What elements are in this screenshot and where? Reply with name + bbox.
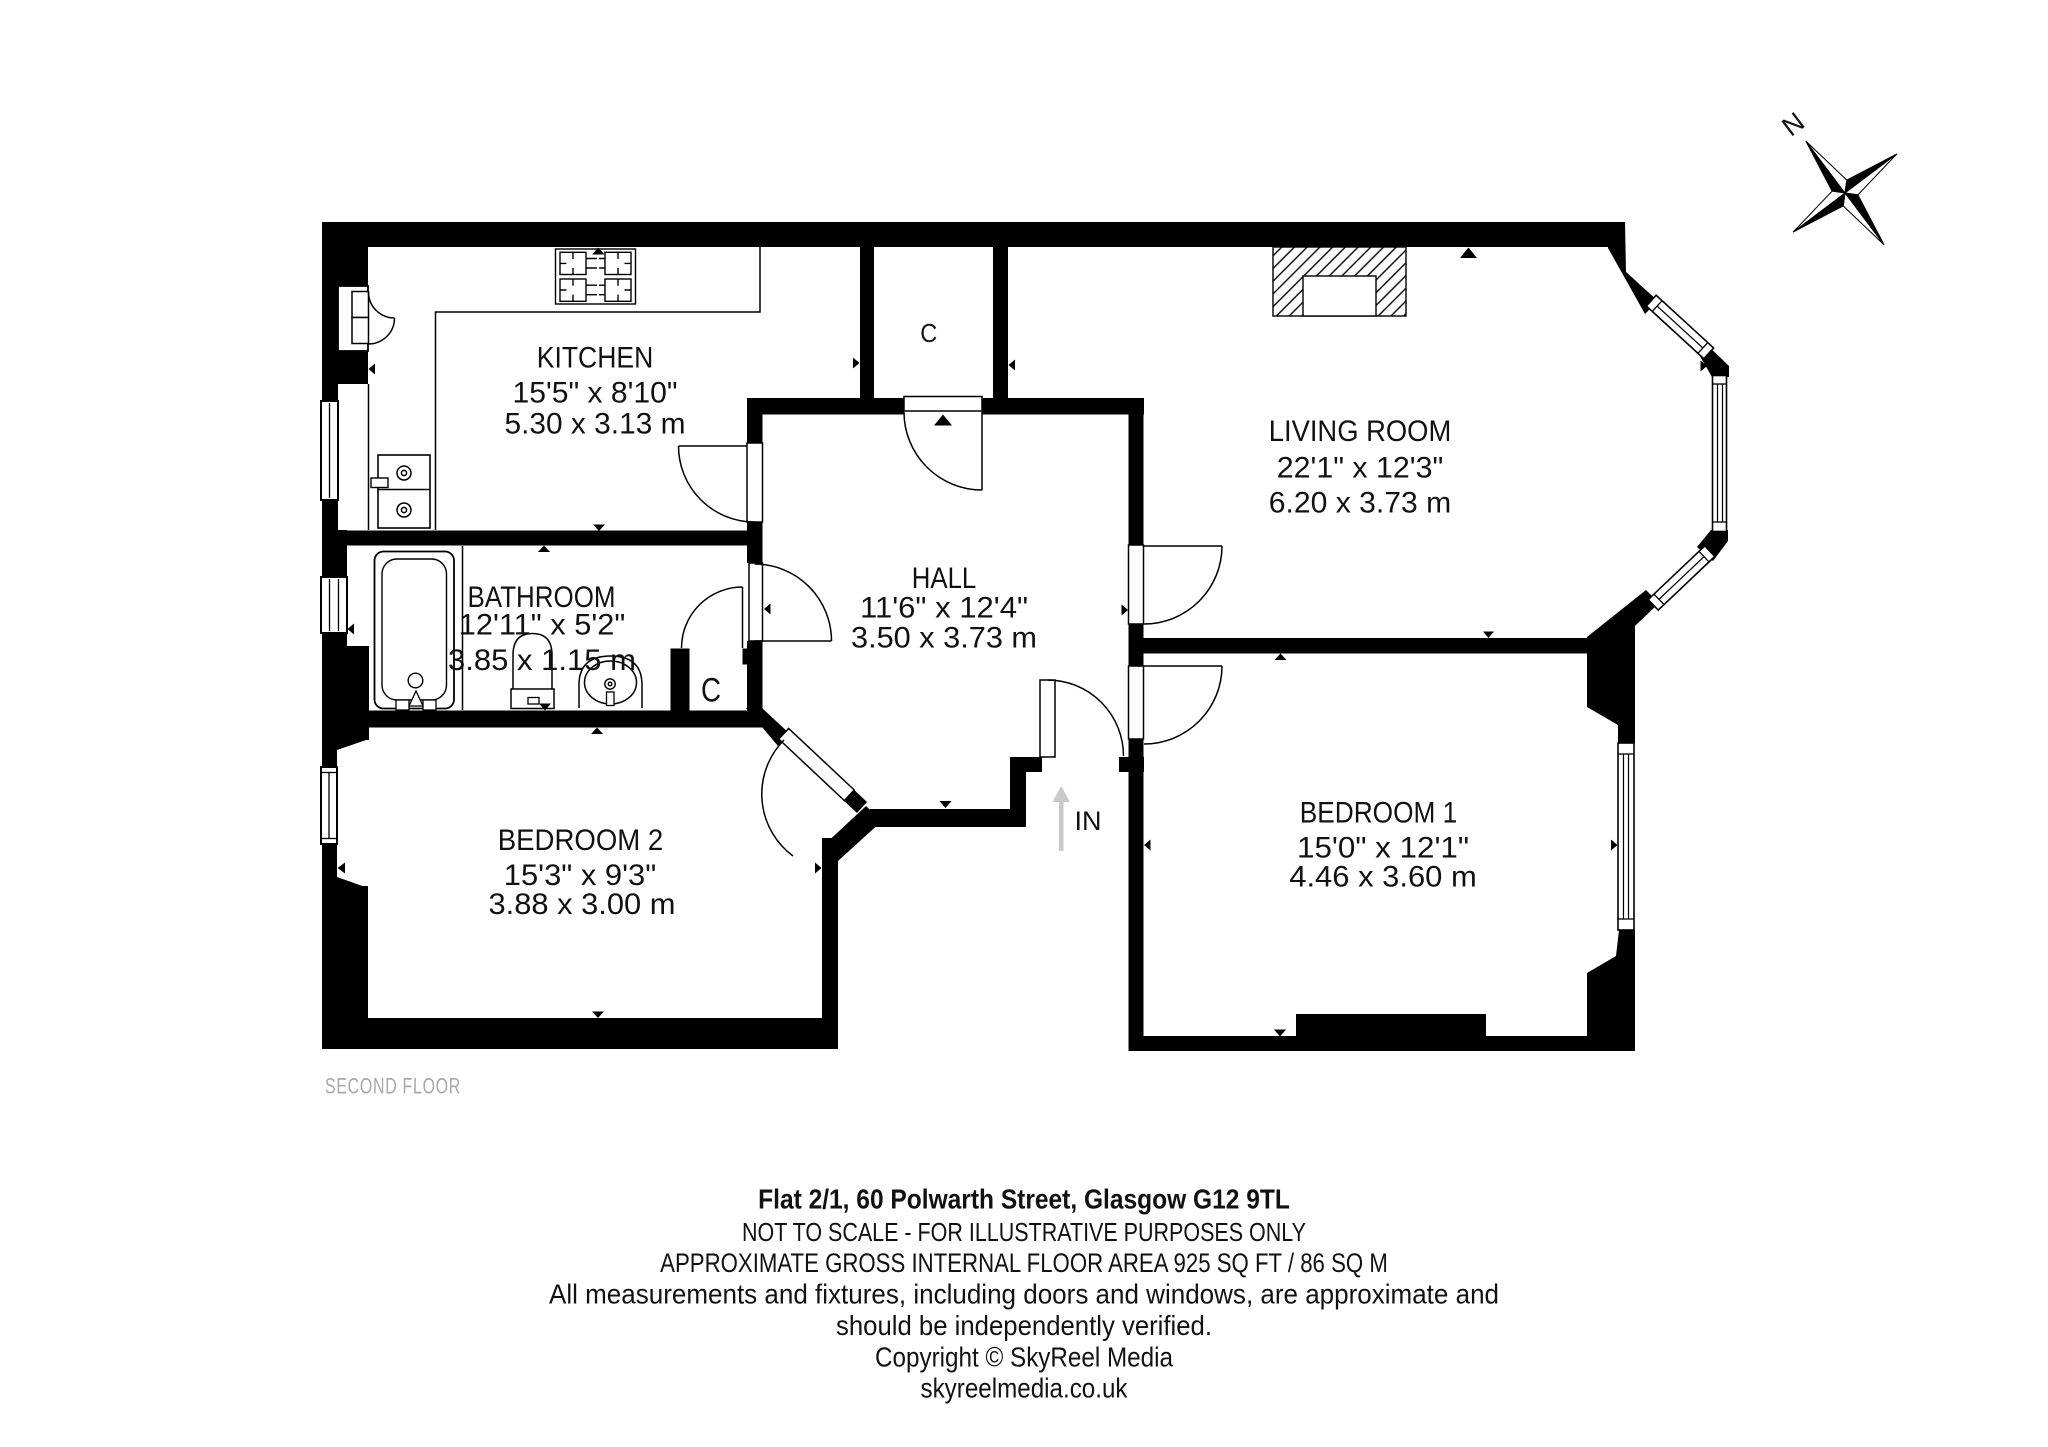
svg-text:SECOND FLOOR: SECOND FLOOR [325, 1074, 461, 1099]
svg-text:5.30 x 3.13 m: 5.30 x 3.13 m [505, 408, 686, 441]
svg-text:3.50 x 3.73 m: 3.50 x 3.73 m [851, 622, 1037, 655]
svg-text:IN: IN [1075, 806, 1102, 836]
svg-text:Copyright © SkyReel Media: Copyright © SkyReel Media [875, 1342, 1173, 1373]
svg-text:22'1" x 12'3": 22'1" x 12'3" [1277, 452, 1444, 485]
svg-text:KITCHEN: KITCHEN [537, 342, 654, 375]
svg-text:12'11" x 5'2": 12'11" x 5'2" [459, 609, 626, 642]
svg-text:BEDROOM 2: BEDROOM 2 [498, 824, 664, 857]
svg-text:NOT TO SCALE - FOR ILLUSTRATIV: NOT TO SCALE - FOR ILLUSTRATIVE PURPOSES… [742, 1217, 1306, 1247]
svg-text:4.46 x 3.60 m: 4.46 x 3.60 m [1289, 860, 1477, 893]
svg-text:3.85 x 1.15 m: 3.85 x 1.15 m [448, 644, 636, 677]
svg-text:Flat 2/1, 60 Polwarth Street,: Flat 2/1, 60 Polwarth Street, Glasgow G1… [758, 1184, 1290, 1215]
svg-text:C: C [920, 320, 937, 348]
svg-text:15'5" x 8'10": 15'5" x 8'10" [513, 377, 678, 410]
svg-text:All measurements and fixtures,: All measurements and fixtures, including… [549, 1279, 1499, 1310]
svg-text:C: C [701, 672, 721, 710]
svg-text:11'6" x 12'4": 11'6" x 12'4" [860, 592, 1028, 625]
svg-text:6.20 x 3.73 m: 6.20 x 3.73 m [1269, 487, 1452, 520]
svg-text:APPROXIMATE GROSS INTERNAL FLO: APPROXIMATE GROSS INTERNAL FLOOR AREA 92… [660, 1248, 1388, 1278]
svg-text:LIVING ROOM: LIVING ROOM [1269, 415, 1452, 448]
svg-text:should be independently verifi: should be independently verified. [836, 1310, 1212, 1341]
svg-text:BEDROOM 1: BEDROOM 1 [1300, 796, 1458, 829]
svg-text:3.88 x 3.00 m: 3.88 x 3.00 m [489, 888, 676, 921]
svg-text:HALL: HALL [912, 562, 977, 595]
svg-text:skyreelmedia.co.uk: skyreelmedia.co.uk [921, 1373, 1129, 1404]
